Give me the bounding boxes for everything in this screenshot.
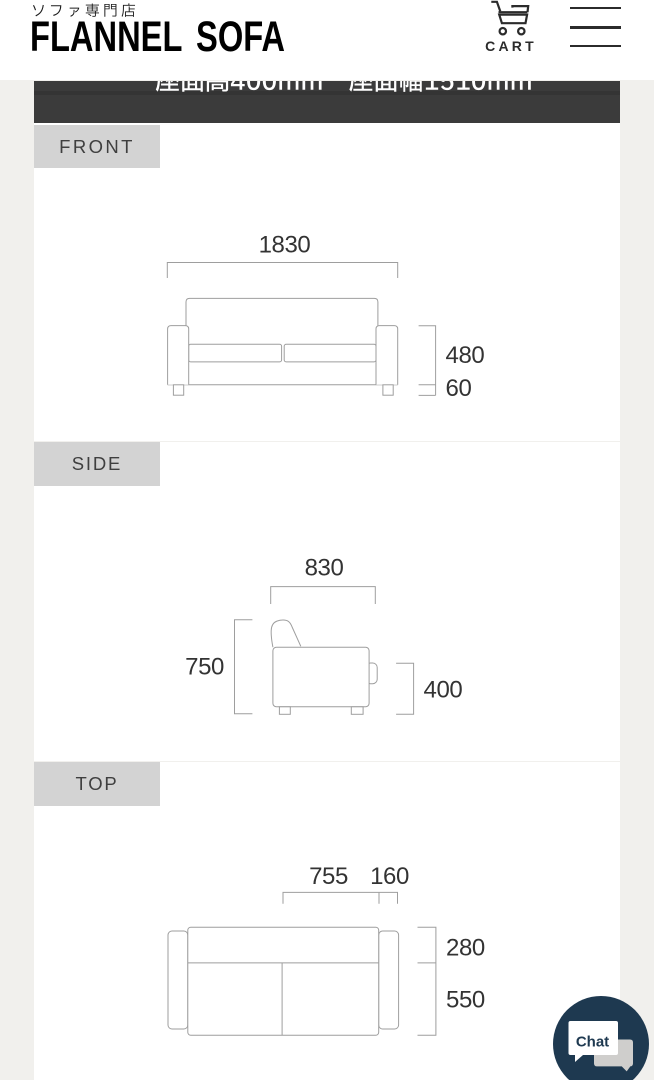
svg-text:750: 750 — [185, 654, 224, 681]
svg-text:755: 755 — [309, 863, 348, 890]
svg-text:400: 400 — [424, 677, 463, 704]
svg-text:550: 550 — [446, 987, 485, 1014]
svg-text:830: 830 — [305, 555, 344, 582]
svg-text:160: 160 — [370, 863, 409, 890]
svg-text:1830: 1830 — [259, 232, 311, 259]
svg-text:Chat: Chat — [576, 1034, 609, 1051]
svg-text:480: 480 — [446, 342, 485, 369]
svg-text:60: 60 — [446, 375, 472, 402]
svg-text:280: 280 — [446, 935, 485, 962]
